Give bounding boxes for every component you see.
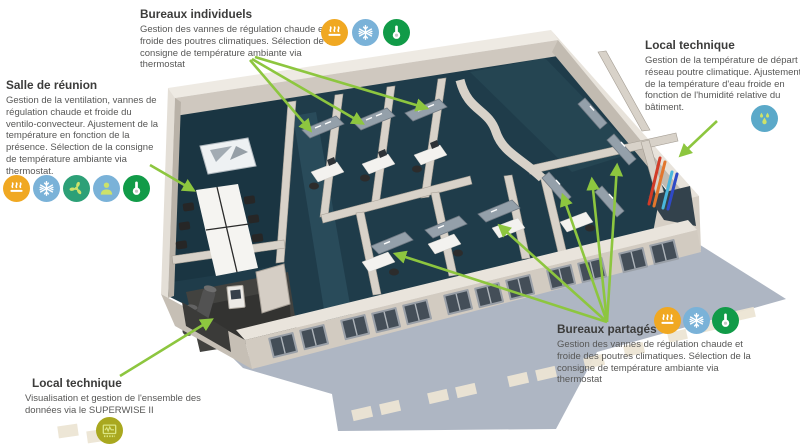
callout-body: Gestion de la ventilation, vannes de rég…	[6, 95, 159, 177]
heating-icon	[3, 175, 30, 202]
callout-icons-local-technique-gauche	[96, 417, 123, 444]
callout-bureaux-individuels: Bureaux individuels Gestion des vannes d…	[140, 7, 336, 71]
temperature-icon	[383, 19, 410, 46]
callout-local-technique-gauche: Local technique Visualisation et gestion…	[25, 376, 207, 417]
callout-title: Local technique	[645, 38, 800, 52]
humidity-icon	[751, 105, 778, 132]
callout-title: Bureaux partagés	[557, 322, 757, 336]
callout-bureaux-partages: Bureaux partagés Gestion des vannes de r…	[557, 322, 757, 386]
heating-icon	[321, 19, 348, 46]
infographic-canvas: Bureaux individuels Gestion des vannes d…	[0, 0, 800, 448]
callout-icons-local-technique-droit	[751, 105, 778, 132]
arrow-local-technique-gauche	[120, 320, 211, 376]
callout-body: Gestion des vannes de régulation chaude …	[557, 339, 757, 386]
cooling-icon	[33, 175, 60, 202]
technical-room-door	[256, 264, 290, 313]
ventilation-icon	[63, 175, 90, 202]
callout-title: Salle de réunion	[6, 78, 159, 92]
callout-title: Local technique	[32, 376, 207, 390]
arrow-local-technique-droit	[681, 121, 717, 155]
callout-body: Visualisation et gestion de l'ensemble d…	[25, 393, 207, 417]
supervision-icon	[96, 417, 123, 444]
cooling-icon	[352, 19, 379, 46]
callout-title: Bureaux individuels	[140, 7, 336, 21]
callout-body: Gestion des vannes de régulation chaude …	[140, 24, 336, 71]
presence-icon	[93, 175, 120, 202]
superwise-wall-panel	[227, 285, 245, 309]
callout-salle-de-reunion: Salle de réunion Gestion de la ventilati…	[6, 78, 159, 177]
temperature-icon	[123, 175, 150, 202]
callout-icons-salle-de-reunion	[3, 175, 150, 202]
callout-local-technique-droit: Local technique Gestion de la températur…	[645, 38, 800, 114]
callout-icons-bureaux-individuels	[321, 19, 410, 46]
